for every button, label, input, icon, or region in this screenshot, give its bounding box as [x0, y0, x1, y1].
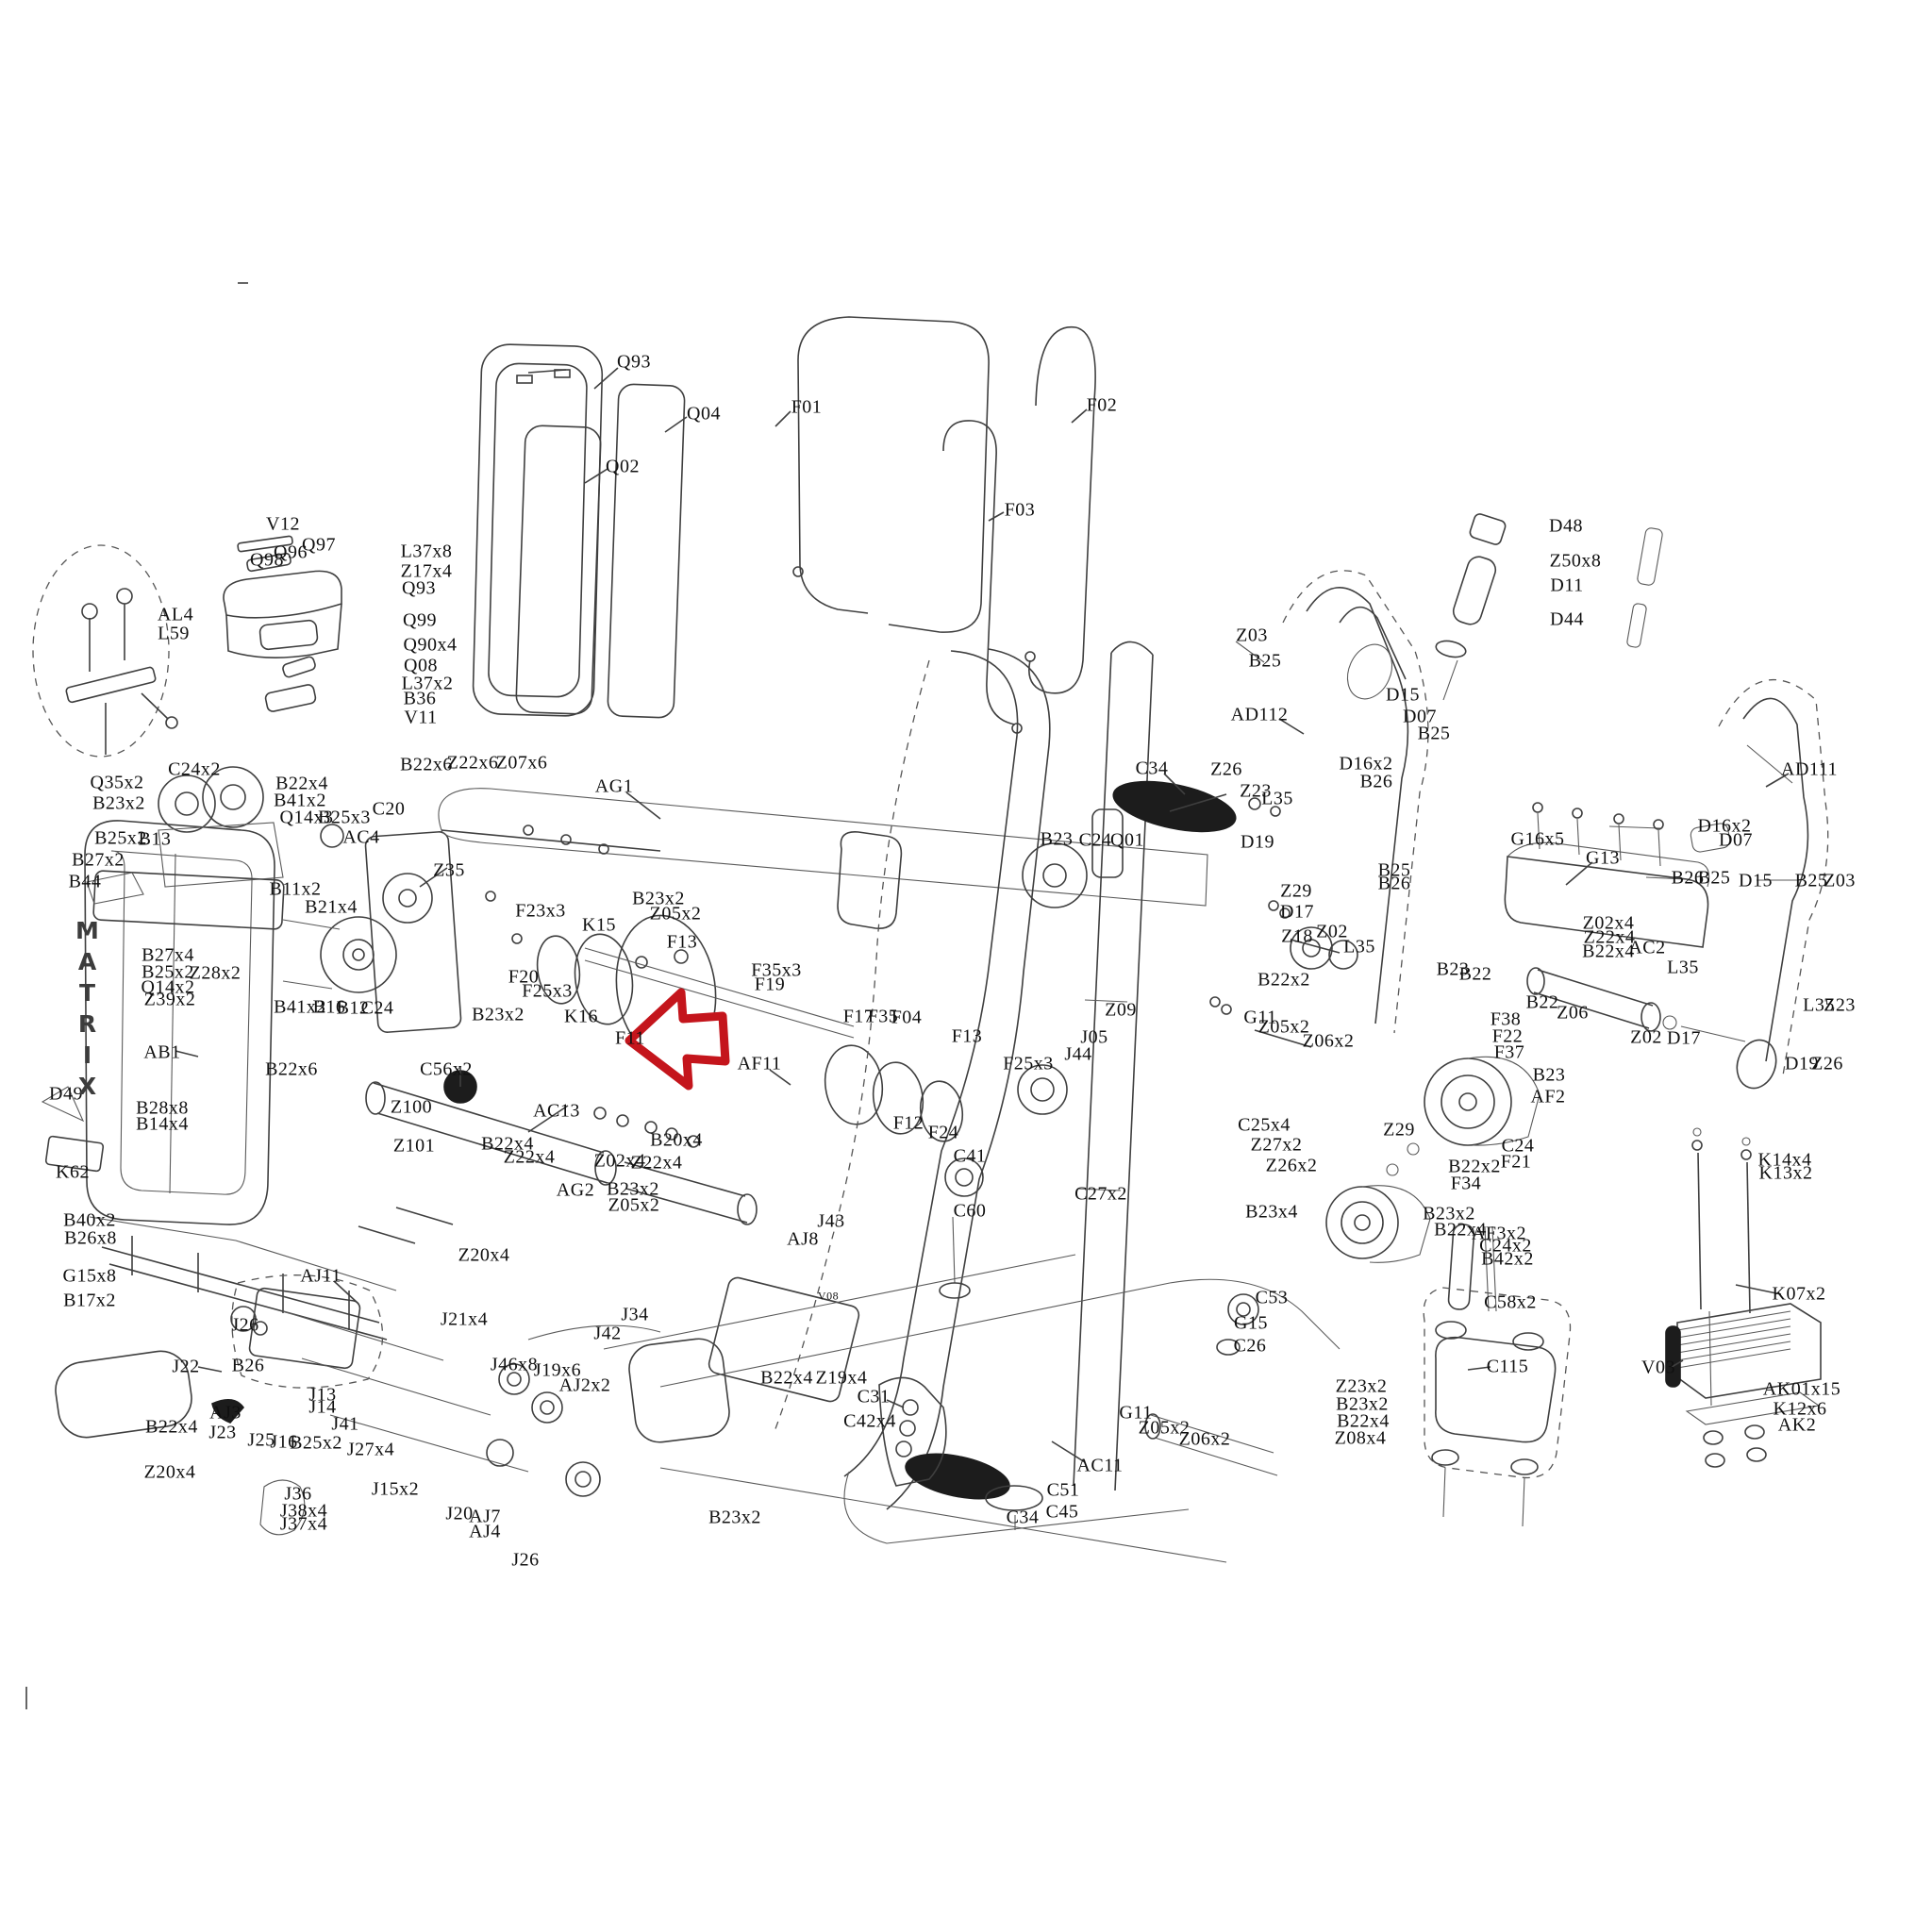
- part-label: Q97: [302, 535, 336, 557]
- part-label: Z50x8: [1550, 551, 1602, 573]
- part-label: B17x2: [63, 1291, 116, 1312]
- part-label: Z22x4: [631, 1153, 683, 1174]
- part-label: F11: [615, 1028, 645, 1050]
- part-label: V03: [1641, 1357, 1675, 1379]
- part-label: J34: [621, 1305, 648, 1326]
- part-label: L37x8: [401, 541, 453, 563]
- page-marks: [26, 283, 248, 1709]
- part-label: C45: [1046, 1502, 1079, 1524]
- part-label: Z06x2: [1179, 1429, 1231, 1451]
- part-label: D15: [1739, 871, 1773, 892]
- part-label: G16x5: [1511, 829, 1565, 851]
- part-label: B26: [1360, 772, 1393, 793]
- part-label: J22: [172, 1357, 199, 1378]
- part-label: B21x4: [305, 897, 358, 919]
- part-label: D17: [1280, 902, 1314, 924]
- part-label: C58x2: [1484, 1292, 1537, 1314]
- part-label: Z101: [393, 1136, 435, 1158]
- part-label: AD111: [1781, 759, 1838, 781]
- part-label: C34: [1136, 758, 1169, 780]
- part-label: C24: [1079, 830, 1112, 852]
- cables: [793, 317, 1095, 733]
- part-label: B23x2: [92, 793, 145, 815]
- part-label: Q35x2: [91, 773, 144, 794]
- part-label: V11: [404, 708, 437, 729]
- part-label: B25: [1249, 651, 1282, 673]
- part-label: B26x8: [64, 1228, 117, 1250]
- part-label: B23x2: [708, 1507, 761, 1529]
- part-label: B25x2: [290, 1433, 342, 1455]
- part-label: AC2: [1628, 938, 1665, 959]
- part-label: B22x4: [145, 1417, 198, 1439]
- part-label: AF2: [1530, 1087, 1565, 1108]
- part-label: D11: [1550, 575, 1583, 597]
- part-label: AD112: [1231, 705, 1289, 726]
- part-label: B22: [1459, 964, 1492, 986]
- part-label: D48: [1549, 516, 1583, 538]
- part-label: B26: [1378, 874, 1411, 895]
- part-label: Z06: [1557, 1003, 1589, 1024]
- part-label: Q93: [617, 352, 651, 374]
- detail-bubble-al4: [33, 545, 177, 757]
- part-label: C31: [858, 1387, 891, 1408]
- part-label: Z22x6: [447, 753, 499, 774]
- part-label: Z39x2: [144, 990, 196, 1011]
- part-label: Z07x6: [496, 753, 548, 774]
- part-label: V08: [818, 1290, 839, 1304]
- part-label: J15x2: [372, 1479, 419, 1501]
- part-label: Z29: [1280, 881, 1312, 903]
- part-label: J43: [817, 1211, 844, 1233]
- part-label: K62: [56, 1162, 90, 1184]
- part-label: C27x2: [1074, 1184, 1127, 1206]
- part-label: F25x3: [522, 981, 573, 1003]
- part-label: J41: [331, 1414, 358, 1436]
- part-label: AK01x15: [1763, 1379, 1840, 1401]
- part-label: C24: [361, 998, 394, 1020]
- part-label: C56x2: [420, 1059, 473, 1081]
- part-label: K13x2: [1759, 1163, 1813, 1185]
- part-label: B20x4: [650, 1130, 703, 1152]
- part-label: Z20x4: [144, 1462, 196, 1484]
- brand-matrix-vertical: MATRIX: [74, 917, 106, 1104]
- pop-pin-parts: [1435, 512, 1663, 700]
- part-label: B25: [1698, 868, 1731, 890]
- part-label: C41: [954, 1146, 987, 1168]
- part-label: Z26: [1210, 759, 1242, 781]
- part-label: B23x4: [1245, 1202, 1298, 1224]
- part-label: K16: [564, 1007, 598, 1028]
- part-label: B42x2: [1481, 1249, 1534, 1271]
- part-label: J42: [593, 1324, 621, 1345]
- part-label: C51: [1047, 1480, 1080, 1502]
- part-label: Z06x2: [1303, 1031, 1355, 1053]
- part-label: C25x4: [1238, 1115, 1291, 1137]
- part-label: C26: [1234, 1336, 1267, 1357]
- part-label: AC4: [342, 827, 379, 849]
- part-label: F02: [1087, 395, 1118, 417]
- part-label: B26: [232, 1356, 265, 1377]
- part-label: Z27x2: [1251, 1135, 1303, 1157]
- part-label: Z08x4: [1335, 1428, 1387, 1450]
- part-label: B22x6: [265, 1059, 318, 1081]
- part-label: J46x8: [491, 1355, 538, 1376]
- part-label: G15: [1234, 1313, 1268, 1335]
- part-label: B23: [1533, 1065, 1566, 1087]
- part-label: B22x4: [1582, 941, 1635, 963]
- part-label: J26: [231, 1315, 258, 1337]
- part-label: C115: [1487, 1357, 1529, 1378]
- diagram-canvas: V12Q98Q96Q97L37x8Z17x4Q93Q99Q90x4Q08L37x…: [0, 0, 1932, 1932]
- part-label: D19: [1241, 832, 1274, 854]
- part-label: F04: [891, 1008, 923, 1029]
- part-label: Z28x2: [190, 963, 241, 985]
- part-label: F01: [791, 397, 823, 419]
- part-label: G13: [1586, 848, 1620, 870]
- part-label: Q02: [606, 457, 640, 478]
- part-label: AB1: [143, 1042, 180, 1064]
- part-label: Z05x2: [650, 904, 702, 925]
- part-label: Z18: [1281, 926, 1313, 948]
- part-label: Z100: [391, 1097, 432, 1119]
- shroud-panels: [473, 343, 685, 718]
- part-label: J37x4: [280, 1514, 327, 1536]
- part-label: C60: [954, 1201, 987, 1223]
- part-label: L35: [1343, 937, 1375, 958]
- part-label: Z35: [433, 860, 465, 882]
- part-label: Z29: [1383, 1120, 1415, 1141]
- part-label: B44: [69, 872, 102, 893]
- part-label: Q93: [402, 578, 436, 600]
- center-rollers: [366, 909, 1067, 1298]
- part-label: F13: [667, 932, 698, 954]
- part-label: F21: [1501, 1152, 1532, 1174]
- part-label: K15: [582, 915, 616, 937]
- part-label: C24x2: [168, 759, 221, 781]
- part-label: F23x3: [515, 901, 566, 923]
- part-label: J21x4: [441, 1309, 488, 1331]
- part-label: B25: [1418, 724, 1451, 745]
- part-label: B22: [1526, 992, 1559, 1014]
- part-label: AK2: [1778, 1415, 1816, 1437]
- part-label: F19: [755, 974, 786, 996]
- part-label: B25x3: [318, 808, 371, 829]
- part-label: F37: [1494, 1042, 1525, 1064]
- part-label: L59: [158, 624, 190, 645]
- part-label: J23: [208, 1423, 236, 1444]
- part-label: Q04: [687, 404, 721, 425]
- part-label: Z02: [1630, 1027, 1662, 1049]
- part-label: J44: [1064, 1044, 1091, 1066]
- part-label: Z26x2: [1266, 1156, 1318, 1177]
- part-label: C53: [1256, 1288, 1289, 1309]
- part-label: AJ2x2: [559, 1375, 611, 1397]
- part-label: G15x8: [63, 1266, 117, 1288]
- part-label: F24: [928, 1123, 959, 1144]
- part-label: Z03: [1824, 871, 1856, 892]
- part-label: F34: [1451, 1174, 1482, 1195]
- part-label: AJ11: [300, 1266, 341, 1288]
- part-label: C42x4: [843, 1411, 896, 1433]
- leader-lines: [175, 368, 1789, 1462]
- part-label: D07: [1719, 830, 1753, 852]
- part-label: B23x2: [472, 1005, 525, 1026]
- part-label: B22x6: [400, 755, 453, 776]
- part-label: B27x2: [72, 850, 125, 872]
- part-label: B23: [1041, 829, 1074, 851]
- part-label: Z23: [1824, 995, 1856, 1017]
- part-label: AJ3: [209, 1403, 241, 1424]
- part-label: AC13: [533, 1101, 580, 1123]
- part-label: C20: [373, 799, 406, 821]
- part-label: Z20x4: [458, 1245, 510, 1267]
- part-label: AG2: [557, 1180, 594, 1202]
- exploded-drawing: [0, 0, 1932, 1932]
- part-label: L35: [1667, 958, 1699, 979]
- part-label: L35: [1261, 789, 1293, 810]
- part-label: F25x3: [1003, 1054, 1054, 1075]
- part-label: K07x2: [1773, 1284, 1826, 1306]
- part-label: F12: [893, 1113, 924, 1135]
- part-label: Q99: [403, 610, 437, 632]
- part-label: J27x4: [347, 1440, 394, 1461]
- part-label: AG1: [595, 776, 633, 798]
- part-label: AC11: [1076, 1456, 1123, 1477]
- part-label: Z22x4: [504, 1147, 556, 1169]
- part-label: F13: [952, 1026, 983, 1048]
- part-label: D15: [1386, 685, 1420, 707]
- part-label: J26: [511, 1550, 539, 1572]
- part-label: Z05x2: [608, 1195, 660, 1217]
- part-label: B14x4: [136, 1114, 189, 1136]
- part-label: Q01: [1110, 830, 1144, 852]
- part-label: B13: [139, 829, 172, 851]
- part-label: AJ4: [469, 1522, 501, 1543]
- part-label: AJ8: [787, 1229, 819, 1251]
- part-label: B22x4: [760, 1368, 813, 1390]
- part-label: F03: [1005, 500, 1036, 522]
- part-label: Z09: [1105, 1000, 1137, 1022]
- part-label: Q90x4: [404, 635, 458, 657]
- part-label: V12: [266, 514, 300, 536]
- part-label: D17: [1667, 1028, 1701, 1050]
- part-label: C34: [1007, 1507, 1040, 1529]
- part-label: D44: [1550, 609, 1584, 631]
- part-label: B22x2: [1257, 970, 1310, 991]
- part-label: AF11: [738, 1054, 782, 1075]
- part-label: Z03: [1236, 625, 1268, 647]
- part-label: Z26: [1811, 1054, 1843, 1075]
